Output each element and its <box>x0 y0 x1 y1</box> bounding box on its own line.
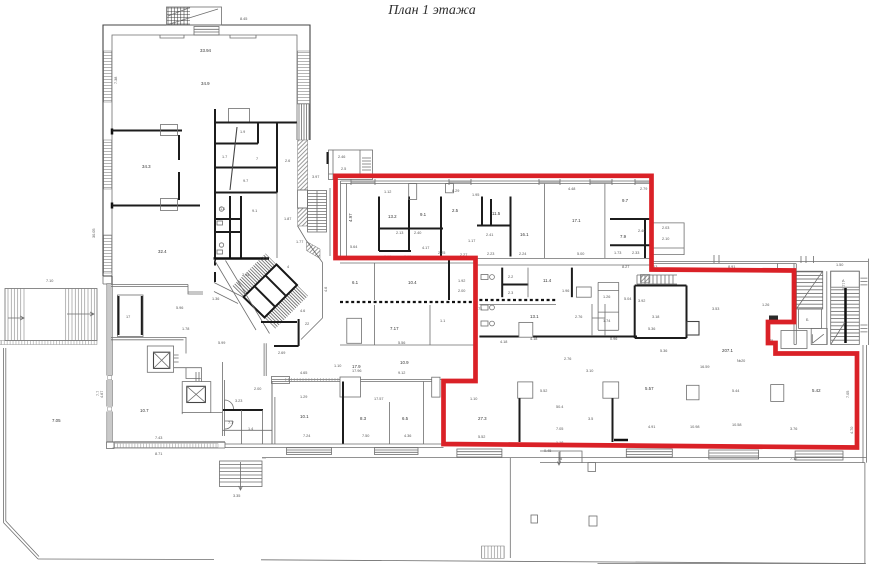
svg-text:4.67: 4.67 <box>100 391 104 398</box>
svg-text:1.7: 1.7 <box>222 155 227 159</box>
svg-text:3.18: 3.18 <box>652 315 659 319</box>
svg-text:9.1: 9.1 <box>420 212 427 217</box>
svg-text:1.4: 1.4 <box>248 427 253 431</box>
svg-text:7.10: 7.10 <box>46 279 53 283</box>
svg-text:5.52: 5.52 <box>540 389 547 393</box>
svg-text:13.2: 13.2 <box>388 214 397 219</box>
svg-text:2.76: 2.76 <box>575 315 582 319</box>
svg-text:7.05: 7.05 <box>846 391 850 398</box>
svg-text:13.1: 13.1 <box>530 314 539 319</box>
svg-text:8.45: 8.45 <box>240 17 247 21</box>
svg-text:8.71: 8.71 <box>155 452 162 456</box>
svg-text:2.6: 2.6 <box>285 159 290 163</box>
svg-text:2.76: 2.76 <box>564 357 571 361</box>
svg-text:9.12: 9.12 <box>398 371 405 375</box>
svg-text:22: 22 <box>305 322 309 326</box>
svg-text:4.18: 4.18 <box>500 340 507 344</box>
svg-text:2.46: 2.46 <box>338 155 345 159</box>
svg-text:4.6: 4.6 <box>300 309 305 313</box>
svg-text:50.4: 50.4 <box>556 405 563 409</box>
svg-text:4.6: 4.6 <box>324 287 328 292</box>
svg-text:4.65: 4.65 <box>300 371 307 375</box>
svg-text:4.18: 4.18 <box>530 337 537 341</box>
svg-text:3.35: 3.35 <box>233 494 240 498</box>
svg-text:9.7: 9.7 <box>243 179 248 183</box>
svg-text:1.26: 1.26 <box>762 303 769 307</box>
svg-text:2.24: 2.24 <box>519 252 526 256</box>
svg-text:1.74: 1.74 <box>603 319 610 323</box>
svg-text:17.96: 17.96 <box>352 369 362 373</box>
svg-text:1.92: 1.92 <box>458 279 465 283</box>
svg-text:2.25: 2.25 <box>438 251 445 255</box>
svg-text:7.9: 7.9 <box>620 234 627 239</box>
svg-text:4.36: 4.36 <box>404 434 411 438</box>
svg-text:8.29: 8.29 <box>452 189 459 193</box>
svg-text:5.42: 5.42 <box>812 388 821 393</box>
svg-text:3.97: 3.97 <box>312 175 319 179</box>
svg-text:1.50: 1.50 <box>836 263 843 267</box>
svg-text:30.05: 30.05 <box>92 228 96 238</box>
svg-text:7.17: 7.17 <box>390 326 399 331</box>
svg-text:5.00: 5.00 <box>577 252 584 256</box>
svg-text:4.91: 4.91 <box>648 425 655 429</box>
svg-text:План 1 этажа: План 1 этажа <box>387 3 475 18</box>
svg-text:10.58: 10.58 <box>732 423 742 427</box>
svg-text:3.10: 3.10 <box>586 369 593 373</box>
svg-text:7.50: 7.50 <box>362 434 369 438</box>
svg-text:5.57: 5.57 <box>645 386 654 391</box>
svg-text:1.1: 1.1 <box>440 319 445 323</box>
svg-text:3.92: 3.92 <box>638 299 645 303</box>
svg-text:7.43: 7.43 <box>155 436 162 440</box>
svg-text:9.1: 9.1 <box>252 209 257 213</box>
svg-text:8.27: 8.27 <box>622 265 629 269</box>
svg-text:5.44: 5.44 <box>732 389 739 393</box>
svg-text:17.57: 17.57 <box>374 397 384 401</box>
svg-text:№20: №20 <box>737 359 745 363</box>
svg-text:34.3: 34.3 <box>142 164 151 169</box>
svg-text:5.52: 5.52 <box>478 435 485 439</box>
svg-text:1.36: 1.36 <box>212 297 219 301</box>
svg-text:2.5: 2.5 <box>452 208 459 213</box>
svg-text:3.76: 3.76 <box>790 427 797 431</box>
svg-text:4.70: 4.70 <box>850 427 854 434</box>
svg-text:2.10: 2.10 <box>662 237 669 241</box>
svg-text:32.4: 32.4 <box>158 249 167 254</box>
svg-text:7.05: 7.05 <box>52 418 61 423</box>
svg-text:5.36: 5.36 <box>648 327 655 331</box>
svg-text:9.7: 9.7 <box>622 198 629 203</box>
svg-text:1.77: 1.77 <box>296 240 303 244</box>
svg-text:10.4: 10.4 <box>408 280 417 285</box>
svg-text:1.78: 1.78 <box>182 327 189 331</box>
svg-text:16.1: 16.1 <box>520 232 529 237</box>
svg-text:2.2: 2.2 <box>508 275 513 279</box>
svg-text:34.9: 34.9 <box>201 81 210 86</box>
svg-text:7.05: 7.05 <box>556 427 563 431</box>
svg-text:11.4: 11.4 <box>543 278 552 283</box>
svg-text:2.03: 2.03 <box>662 226 669 230</box>
svg-text:1.87: 1.87 <box>284 217 291 221</box>
svg-text:1.10: 1.10 <box>334 364 341 368</box>
svg-text:0.96: 0.96 <box>610 337 617 341</box>
svg-text:5.64: 5.64 <box>350 245 357 249</box>
svg-text:2.40: 2.40 <box>638 229 645 233</box>
svg-text:11.5: 11.5 <box>492 211 501 216</box>
svg-text:2.3: 2.3 <box>508 291 513 295</box>
svg-text:3.53: 3.53 <box>712 307 719 311</box>
svg-text:3.23: 3.23 <box>235 399 242 403</box>
svg-text:8.3: 8.3 <box>360 416 367 421</box>
svg-text:1.26: 1.26 <box>603 295 610 299</box>
svg-text:5.56: 5.56 <box>398 341 405 345</box>
svg-text:1.96: 1.96 <box>562 289 569 293</box>
svg-text:7: 7 <box>256 157 258 161</box>
svg-text:1.29: 1.29 <box>300 395 307 399</box>
svg-text:10.1: 10.1 <box>300 414 309 419</box>
svg-text:2.00: 2.00 <box>458 289 465 293</box>
svg-text:17.1: 17.1 <box>572 218 581 223</box>
svg-text:7.24: 7.24 <box>303 434 310 438</box>
svg-text:75: 75 <box>558 457 562 461</box>
svg-text:10.7: 10.7 <box>140 408 149 413</box>
svg-text:1.9: 1.9 <box>240 130 245 134</box>
svg-text:1.10: 1.10 <box>470 397 477 401</box>
svg-text:2.69: 2.69 <box>278 351 285 355</box>
svg-text:27.3: 27.3 <box>478 416 487 421</box>
svg-text:10.98: 10.98 <box>690 425 700 429</box>
svg-text:4.48: 4.48 <box>568 187 575 191</box>
svg-text:2.00: 2.00 <box>254 387 261 391</box>
svg-text:5.96: 5.96 <box>176 306 183 310</box>
svg-text:1.12: 1.12 <box>384 190 391 194</box>
svg-text:1.95: 1.95 <box>472 193 479 197</box>
svg-text:6.5: 6.5 <box>402 416 409 421</box>
svg-text:6.1: 6.1 <box>352 280 359 285</box>
svg-text:7.1: 7.1 <box>228 421 233 425</box>
svg-text:4.97: 4.97 <box>348 213 353 222</box>
svg-text:10.9: 10.9 <box>400 360 409 365</box>
svg-text:33.94: 33.94 <box>200 48 212 53</box>
svg-text:2.33: 2.33 <box>632 251 639 255</box>
svg-text:1.17: 1.17 <box>468 239 475 243</box>
svg-text:2.13: 2.13 <box>396 231 403 235</box>
svg-text:4: 4 <box>287 265 289 269</box>
svg-text:207.1: 207.1 <box>722 348 734 353</box>
svg-text:16.59: 16.59 <box>700 365 710 369</box>
svg-text:5.36: 5.36 <box>660 349 667 353</box>
svg-text:2.40: 2.40 <box>414 231 421 235</box>
svg-text:1.73: 1.73 <box>614 251 621 255</box>
svg-text:2.79: 2.79 <box>640 187 647 191</box>
svg-text:2.23: 2.23 <box>487 252 494 256</box>
svg-text:2.44: 2.44 <box>242 273 249 277</box>
svg-text:7.38: 7.38 <box>114 77 118 84</box>
svg-text:3.5: 3.5 <box>588 417 593 421</box>
svg-text:2.41: 2.41 <box>486 233 493 237</box>
svg-text:1.1: 1.1 <box>220 207 225 211</box>
svg-text:4.17: 4.17 <box>422 246 429 250</box>
svg-text:7.7: 7.7 <box>96 391 100 396</box>
svg-text:17: 17 <box>126 315 130 319</box>
svg-text:5.04: 5.04 <box>624 297 631 301</box>
svg-text:2.5: 2.5 <box>341 167 346 171</box>
svg-text:5.99: 5.99 <box>218 341 225 345</box>
